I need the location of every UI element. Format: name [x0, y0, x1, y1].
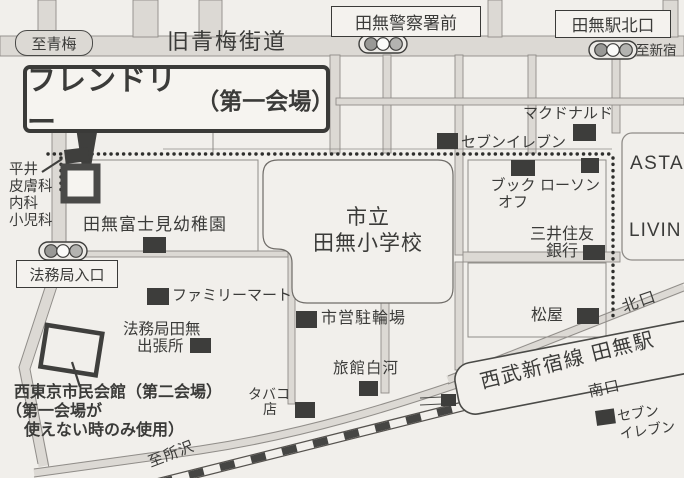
- building-marker-icon: [583, 245, 605, 260]
- school-line2: 田無小学校: [288, 231, 448, 257]
- livin-label: LIVIN: [629, 220, 682, 242]
- building-marker-icon: [577, 308, 599, 324]
- clinic-line4: 小児科: [9, 213, 53, 230]
- school-label: 市立 田無小学校: [288, 205, 448, 257]
- station-north-exit-label: 田無駅北口: [572, 12, 655, 36]
- traffic-light-icon: [589, 41, 637, 59]
- building-marker-icon: [143, 237, 166, 253]
- old-ome-kaido-road: [0, 36, 684, 56]
- homukyoku-entrance-label: 法務局入口: [29, 264, 104, 285]
- second-venue-line2: （第一会場が: [6, 403, 102, 421]
- venue-title-box: フレンドリー（第一会場）: [23, 65, 330, 133]
- matsuya-label: 松屋: [531, 307, 563, 325]
- homukyoku-entrance-sign: 法務局入口: [16, 260, 118, 288]
- family-mart-label: ファミリーマート: [172, 287, 292, 304]
- tobacco-line2: 店: [263, 401, 277, 417]
- kindergarten-label: 田無富士見幼稚園: [83, 215, 227, 235]
- mcdonalds-label: マクドナルド: [523, 105, 613, 122]
- station-entrance-marker: [441, 394, 456, 406]
- smbc-line1: 三井住友: [530, 226, 594, 244]
- clinic-line3: 内科: [9, 196, 53, 213]
- seven-eleven-south-label: セブン イレブン: [616, 399, 676, 442]
- school-line1: 市立: [288, 205, 448, 231]
- building-marker-icon: [359, 381, 378, 396]
- venue-building-square: [64, 167, 97, 200]
- building-marker-icon: [573, 124, 596, 141]
- tanashi-area-map: 至青梅 旧青梅街道 田無警察署前 田無駅北口 至新宿 フレンドリー（第一会場） …: [0, 0, 684, 478]
- clinic-marker: [64, 147, 90, 164]
- building-marker-icon: [581, 158, 599, 173]
- police-station-sign: 田無警察署前: [331, 6, 481, 37]
- building-marker-icon: [295, 402, 315, 418]
- to-ome-label: 至青梅: [31, 33, 76, 54]
- venue-hall-label: （第一会場）: [196, 82, 326, 116]
- traffic-light-icon: [359, 35, 407, 53]
- tobacco-line1: タバコ: [248, 386, 290, 402]
- lawson-label: ローソン: [540, 177, 600, 194]
- station-north-exit-sign: 田無駅北口: [555, 10, 671, 38]
- homukyoku-branch-line1: 法務局田無: [123, 321, 201, 339]
- traffic-light-icon: [39, 242, 87, 260]
- second-venue-line3: 使えない時のみ使用）: [24, 422, 184, 440]
- building-marker-icon: [147, 288, 169, 305]
- bookoff-label: ブック オフ: [488, 177, 538, 211]
- bicycle-parking-label: 市営駐輪場: [321, 310, 406, 328]
- police-station-label: 田無警察署前: [355, 9, 457, 34]
- venue-name: フレンドリー: [27, 57, 196, 141]
- asta-label: ASTA: [630, 153, 684, 175]
- to-ome-capsule: 至青梅: [15, 30, 93, 56]
- bookoff-line2: オフ: [488, 194, 538, 211]
- civic-hall-building: [40, 325, 102, 375]
- smbc-line2: 銀行: [546, 243, 578, 261]
- clinic-line2: 皮膚科: [9, 179, 53, 196]
- building-marker-icon: [595, 408, 616, 425]
- second-venue-line1: 西東京市民会館（第二会場）: [14, 384, 222, 402]
- bookoff-line1: ブック: [488, 177, 538, 194]
- ryokan-shirakawa-label: 旅館白河: [333, 360, 399, 378]
- building-marker-icon: [296, 311, 317, 328]
- clinic-label: 平井 皮膚科 内科 小児科: [9, 162, 53, 230]
- building-marker-icon: [190, 338, 211, 353]
- seven-eleven-north-label: セブンイレブン: [461, 134, 566, 151]
- building-marker-icon: [437, 133, 458, 149]
- to-shinjuku-label: 至新宿: [636, 43, 677, 59]
- building-marker-icon: [511, 160, 535, 176]
- homukyoku-branch-line2: 出張所: [137, 338, 184, 356]
- old-ome-kaido-label: 旧青梅街道: [167, 29, 287, 54]
- clinic-line1: 平井: [9, 162, 53, 179]
